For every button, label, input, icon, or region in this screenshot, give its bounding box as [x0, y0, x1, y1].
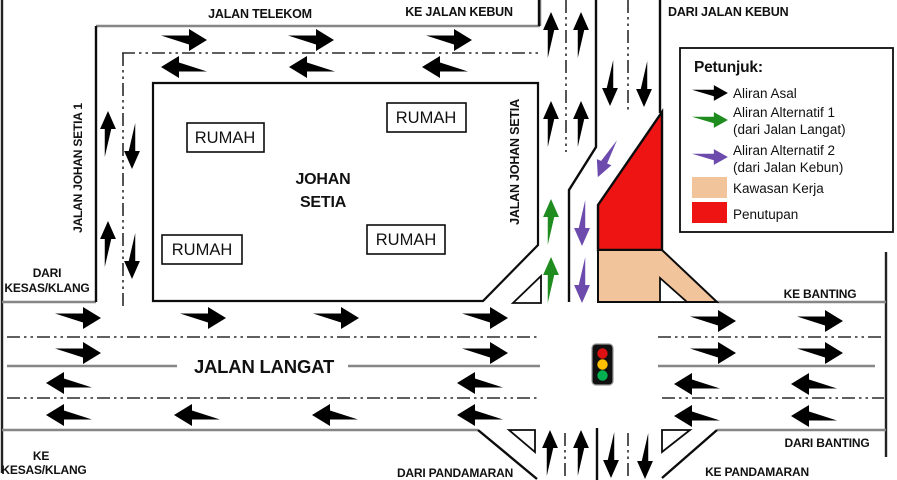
traffic-light-icon [592, 344, 613, 385]
flow-arrow [174, 404, 220, 426]
flow-arrow [462, 307, 508, 329]
flow-arrow [573, 101, 589, 147]
rumah-label: RUMAH [376, 231, 437, 249]
label-dari-jalan-kebun: DARI JALAN KEBUN [668, 5, 789, 19]
label-jalan-johan-setia: JALAN JOHAN SETIA [508, 99, 522, 225]
flow-arrow [457, 372, 503, 394]
flow-arrow [674, 373, 720, 395]
flow-arrow [100, 111, 116, 157]
flow-arrow [426, 29, 472, 51]
label-jalan-langat: JALAN LANGAT [194, 356, 335, 377]
flow-arrow [161, 29, 207, 51]
signal-green-light [597, 370, 607, 380]
flow-arrow [543, 12, 559, 58]
label-johan-setia-1: JOHAN [295, 171, 350, 188]
label-dari-kesas-1: DARI [33, 266, 62, 280]
legend-title: Petunjuk: [694, 59, 763, 76]
flow-arrow [543, 101, 559, 147]
traffic-island [509, 430, 535, 452]
flow-arrow [124, 233, 140, 279]
flow-arrow [636, 61, 652, 107]
flow-arrow [312, 404, 358, 426]
rumah-label: RUMAH [172, 241, 233, 259]
traffic-island [513, 276, 541, 303]
traffic-island [662, 430, 690, 452]
flow-arrow [180, 307, 226, 329]
traffic-diversion-diagram: RUMAH RUMAH RUMAH RUMAH JALAN TELEKOM KE… [0, 0, 897, 480]
flow-arrow [791, 373, 837, 395]
flow-arrow [422, 56, 468, 78]
flow-arrow [161, 56, 207, 78]
flow-arrow [797, 342, 843, 364]
flow-arrow [46, 372, 92, 394]
north-road-right-edge [569, 0, 596, 302]
flow-arrow [100, 221, 116, 267]
label-dari-kesas-2: KESAS/KLANG [4, 281, 89, 295]
label-ke-banting: KE BANTING [784, 287, 857, 301]
rumah-label: RUMAH [396, 109, 457, 127]
label-johan-setia-2: SETIA [300, 194, 347, 211]
label-ke-kesas-2: KESAS/KLANG [1, 463, 86, 477]
signal-red-light [597, 348, 607, 358]
legend: Petunjuk: Aliran Asal Aliran Alternatif … [680, 48, 893, 232]
alt1-flow-arrows [543, 199, 559, 303]
flow-arrow [55, 342, 101, 364]
label-ke-jalan-kebun: KE JALAN KEBUN [405, 5, 513, 19]
flow-arrow [124, 123, 140, 169]
alt1-flow-arrow [543, 257, 559, 303]
legend-item-label: (dari Jalan Langat) [733, 122, 846, 137]
legend-closure-swatch [692, 202, 727, 223]
work-area [598, 250, 717, 302]
flow-arrow [288, 29, 334, 51]
legend-item-label: Aliran Asal [733, 86, 797, 101]
label-dari-pandamaran: DARI PANDAMARAN [397, 466, 513, 480]
flow-arrow [791, 405, 837, 427]
flow-arrow [289, 56, 335, 78]
legend-work-area-swatch [692, 177, 727, 198]
closure-area [598, 112, 662, 250]
flow-arrow [602, 60, 618, 106]
legend-item-label: Aliran Alternatif 2 [733, 143, 835, 158]
flow-arrow [46, 404, 92, 426]
legend-item-label: (dari Jalan Kebun) [733, 160, 843, 175]
flow-arrow [690, 342, 736, 364]
flow-arrow [457, 404, 503, 426]
alt2-flow-arrow [574, 200, 590, 246]
label-dari-banting: DARI BANTING [785, 436, 870, 450]
rumah-label: RUMAH [195, 129, 256, 147]
label-jalan-telekom: JALAN TELEKOM [208, 7, 312, 21]
flow-arrow [797, 310, 843, 332]
flow-arrow [603, 432, 619, 478]
flow-arrow [573, 12, 589, 58]
label-ke-kesas-1: KE [33, 449, 49, 463]
flow-arrow [573, 430, 589, 476]
alt2-flow-arrow [574, 257, 590, 303]
legend-item-label: Kawasan Kerja [733, 181, 824, 196]
legend-item-label: Penutupan [733, 207, 798, 222]
alt1-flow-arrow [543, 199, 559, 245]
johan-setia-block [153, 83, 538, 301]
flow-arrow [690, 310, 736, 332]
flow-arrow [313, 307, 359, 329]
signal-amber-light [597, 359, 607, 369]
flow-arrow [542, 430, 558, 476]
flow-arrow [674, 405, 720, 427]
flow-arrow [462, 342, 508, 364]
flow-arrow [55, 307, 101, 329]
flow-arrow [637, 433, 653, 479]
label-jalan-johan-setia-1: JALAN JOHAN SETIA 1 [71, 103, 85, 233]
legend-item-label: Aliran Alternatif 1 [733, 105, 835, 120]
diagram-svg: RUMAH RUMAH RUMAH RUMAH JALAN TELEKOM KE… [0, 0, 897, 480]
label-ke-pandamaran: KE PANDAMARAN [705, 465, 809, 479]
